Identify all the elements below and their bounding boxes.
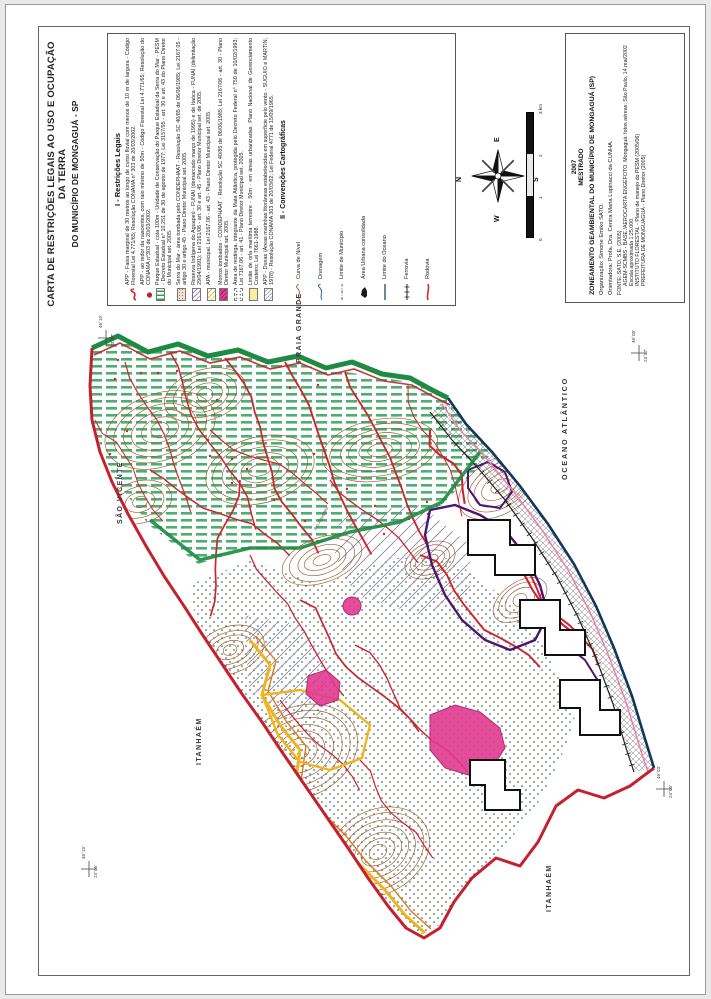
dunas-swatch (264, 288, 273, 301)
municipality-limit-icon (333, 283, 351, 301)
legend-section2-title: II - Convenções Cartográficas (280, 38, 287, 301)
page-title: CARTA DE RESTRIÇÕES LEGAIS AO USO E OCUP… (46, 36, 88, 312)
reserva-indigena-swatch (192, 288, 201, 301)
source-line: AGEM-SCMBS - BASE /AEROCARTA ENGEFOTO. M… (623, 39, 635, 295)
legend-item-text: Morros tombados - CONDEPHAAT - Resolução… (218, 38, 230, 285)
apa-municipal-swatch (207, 288, 216, 301)
legend-item-text: Reserva Indígena do Aguapeú - FUNAI (dem… (191, 38, 203, 285)
legend-item: Serra do Mar - área tombada pelo CONDEPH… (176, 38, 188, 301)
legend-item: Área de restinga, integrante da Mata Atl… (233, 38, 245, 301)
drainage-line-icon (312, 283, 330, 301)
compass-rose (470, 148, 526, 204)
convention-item: Curva de Nível (290, 38, 308, 301)
convention-item: Área Urbana consolidada (355, 38, 373, 301)
scale-tick-0: 0 (538, 238, 543, 241)
convention-label: Curva de Nível (296, 242, 302, 279)
label-sao-vicente: SÃO VICENTE (117, 461, 124, 524)
compass-north-label: N (456, 177, 463, 182)
scale-tick-1: 1 (538, 196, 543, 199)
legend-item: APP - Faixa marginal de 30 metros ao lon… (125, 38, 137, 301)
convention-label: Limite de Município (339, 231, 345, 279)
svg-text:24°06': 24°06' (668, 785, 673, 798)
info-year: 2007 (571, 39, 578, 295)
legend-item: APP - ao redor da nascentes, com raio mí… (140, 38, 152, 301)
svg-text:46°15': 46°15' (98, 315, 103, 328)
label-itanhaem-south: ITANHAÉM (546, 864, 553, 912)
compass-east-label: E (494, 137, 501, 142)
morros-tombados-swatch (219, 288, 228, 301)
legend-box: I - Restrições Legais APP - Faixa margin… (107, 33, 456, 306)
legend-item: Limite de orla marítima terrestre - 50m … (248, 38, 260, 301)
scale-bar (526, 112, 534, 238)
convention-item: Limite de Município (333, 38, 351, 301)
legend-item-text: Limite de orla marítima terrestre - 50m … (248, 38, 260, 285)
legend-item: APP - Dunas (Áreas marinhas litorâneas e… (263, 38, 275, 301)
serra-tombada-swatch (177, 288, 186, 301)
legend-item-text: Área de restinga, integrante da Mata Atl… (233, 38, 245, 285)
railway-line-icon (398, 283, 416, 301)
parque-estadual-swatch (156, 288, 165, 301)
scanned-map-page: { "page": { "title_line1": "CARTA DE RES… (0, 0, 711, 999)
legend-item-text: Parque Estadual - cota 100m - Unidade de… (155, 38, 174, 285)
urban-area-icon (355, 283, 373, 301)
legend-section1-title: I - Restrições Legais (113, 38, 122, 301)
restinga-swatch (234, 288, 243, 301)
convention-item: Drenagem (312, 38, 330, 301)
svg-text:24°06': 24°06' (93, 865, 98, 878)
compass-star-icon (470, 148, 526, 204)
legend-item-text: APP - ao redor da nascentes, com raio mí… (140, 38, 152, 285)
svg-text:23°57': 23°57' (110, 334, 115, 347)
convention-item: Limite do Oceano (376, 38, 394, 301)
legend-item-text: Serra do Mar - área tombada pelo CONDEPH… (176, 38, 188, 285)
orla-maritima-swatch (249, 288, 258, 301)
convention-label: Drenagem (318, 253, 324, 279)
info-program: MESTRADO (578, 39, 585, 295)
info-organization: Organização: Simone Emiko SATO. (599, 39, 605, 295)
ocean-limit-icon (376, 283, 394, 301)
info-box: 2007 MESTRADO ZONEAMENTO GEAMBIENTAL DO … (565, 33, 685, 303)
svg-text:46°03': 46°03' (656, 766, 661, 779)
legend-item: Parque Estadual - cota 100m - Unidade de… (155, 38, 174, 301)
title-line-2: DO MUNICÍPIO DE MONGAGUÁ - SP (70, 36, 80, 312)
legend-item-text: APP - Dunas (Áreas marinhas litorâneas e… (263, 38, 275, 285)
app-river-line-icon (126, 288, 135, 301)
legend-item: APA - municipal. Lei 2167.06 - art. 43 -… (206, 38, 216, 301)
convention-label: Ferrovia (404, 258, 410, 279)
svg-text:23°57': 23°57' (643, 349, 648, 362)
app-spring-dot-icon (141, 288, 150, 301)
compass-west-label: W (494, 215, 501, 222)
convention-item: Ferrovia (398, 38, 416, 301)
morro-tombado-area (343, 597, 361, 615)
svg-text:46°15': 46°15' (81, 846, 86, 859)
info-sources: FONTE: SATO, S.E. (2005) AGEM-SCMBS - BA… (617, 39, 647, 295)
title-line-1: CARTA DE RESTRIÇÕES LEGAIS AO USO E OCUP… (46, 36, 68, 312)
label-praia-grande: PRAIA GRANDE (296, 292, 303, 363)
compass-south-label: S (533, 177, 540, 182)
legend-item-text: APP - Faixa marginal de 30 metros ao lon… (125, 38, 137, 285)
svg-text:46°08': 46°08' (631, 330, 636, 343)
highway-line-icon (419, 283, 437, 301)
legend-item: Reserva Indígena do Aguapeú - FUNAI (dem… (191, 38, 203, 301)
label-itanhaem-west: ITANHAÉM (196, 717, 203, 765)
legend-item-text: APA - municipal. Lei 2167.06 - art. 43 -… (206, 38, 212, 285)
convention-label: Área Urbana consolidada (361, 216, 367, 279)
legend-item: Morros tombados - CONDEPHAAT - Resolução… (218, 38, 230, 301)
source-line: PREFEITURA DE MONGUAGUÁ - Plano Diretor … (641, 39, 647, 295)
info-title: ZONEAMENTO GEAMBIENTAL DO MUNICÍPIO DE M… (589, 39, 596, 295)
label-oceano-atlantico: OCEANO ATLÂNTICO (560, 377, 569, 480)
scale-tick-2: 2 (538, 154, 543, 157)
convention-label: Limite do Oceano (382, 235, 388, 279)
info-advisor: Orientadora: Profa. Dra. Cenira Maria Lu… (608, 39, 614, 295)
convention-label: Rodovia (425, 258, 431, 279)
scale-tick-3: 3 km (538, 104, 543, 114)
convention-item: Rodovia (419, 38, 437, 301)
